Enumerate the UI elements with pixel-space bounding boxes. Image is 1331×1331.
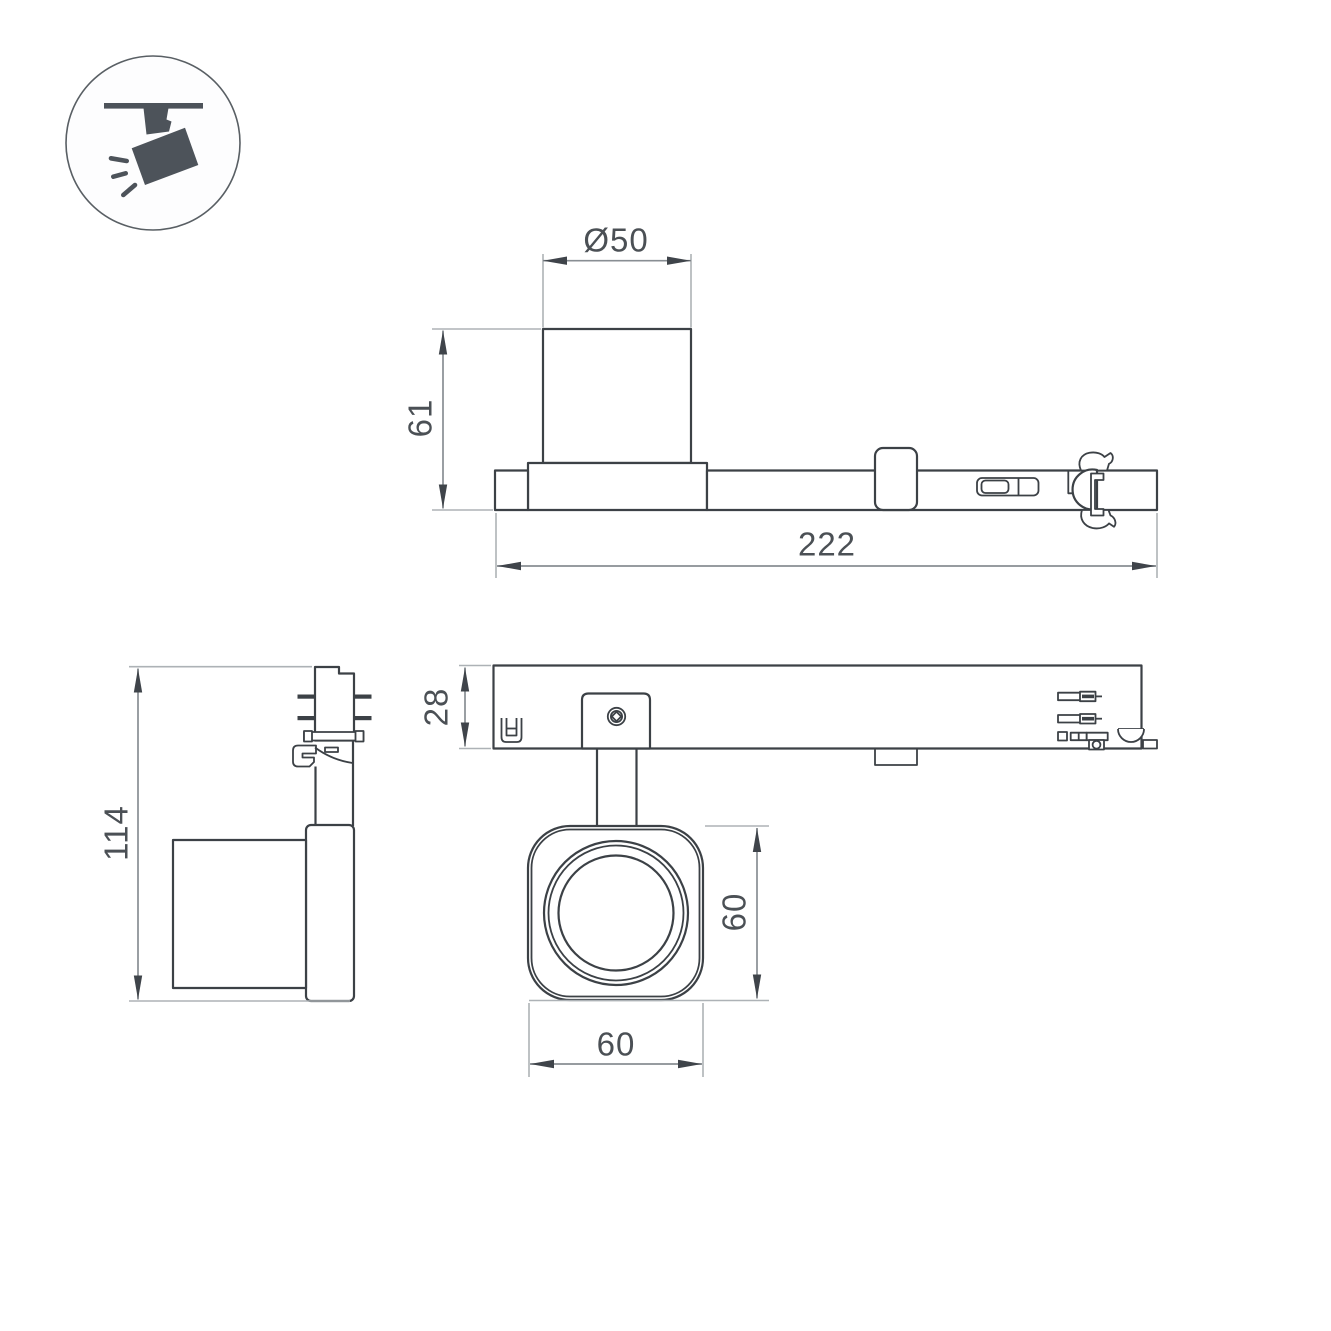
contact-block-long <box>1087 733 1108 741</box>
lamp-head <box>528 826 703 1000</box>
roller <box>1093 741 1101 749</box>
dimension-lamp-diameter: Ø50 <box>543 222 691 328</box>
front-view: 114 <box>98 667 372 1001</box>
label-total-height: 114 <box>98 805 135 861</box>
label-lamp-height: 61 <box>402 399 439 438</box>
dimension-base-depth: 28 <box>418 666 491 749</box>
lamp-cylinder <box>543 329 691 463</box>
mount-knob <box>875 448 917 510</box>
technical-drawing: Ø50 61 222 <box>0 0 1331 1331</box>
stem-top <box>597 749 637 827</box>
side-view: Ø50 61 222 <box>402 222 1157 578</box>
label-track-length: 222 <box>798 526 856 563</box>
dimension-drawing-page: Ø50 61 222 <box>0 0 1331 1331</box>
dimension-head-width: 60 <box>529 1003 703 1077</box>
track-bar-glyph <box>104 103 203 109</box>
lamp-lens-box <box>173 840 306 988</box>
track-adapter <box>315 667 354 741</box>
stem-front <box>316 741 354 827</box>
latch-tab <box>1143 740 1157 749</box>
label-head-width: 60 <box>597 1026 636 1063</box>
label-head-height: 60 <box>716 893 753 932</box>
adapter-notch <box>325 748 338 753</box>
label-base-depth: 28 <box>418 688 455 727</box>
contact-block-square <box>1058 732 1067 741</box>
legend-track-spotlight-icon <box>66 56 240 230</box>
screw-head <box>608 708 625 725</box>
adapter-lock-bar <box>304 731 364 742</box>
track-end-cap <box>495 471 528 511</box>
power-slider-switch <box>977 478 1039 496</box>
knob-below-rail <box>875 749 917 766</box>
dimension-track-length: 222 <box>496 513 1157 578</box>
lamp-body-front <box>306 825 354 1001</box>
track-stem-glyph <box>144 108 172 135</box>
latch-upper-wing <box>1079 452 1112 470</box>
label-lamp-diameter: Ø50 <box>583 222 648 259</box>
lamp-base-block <box>528 463 707 510</box>
top-view: 28 60 60 <box>418 666 1157 1078</box>
adapter-hook <box>293 746 316 767</box>
